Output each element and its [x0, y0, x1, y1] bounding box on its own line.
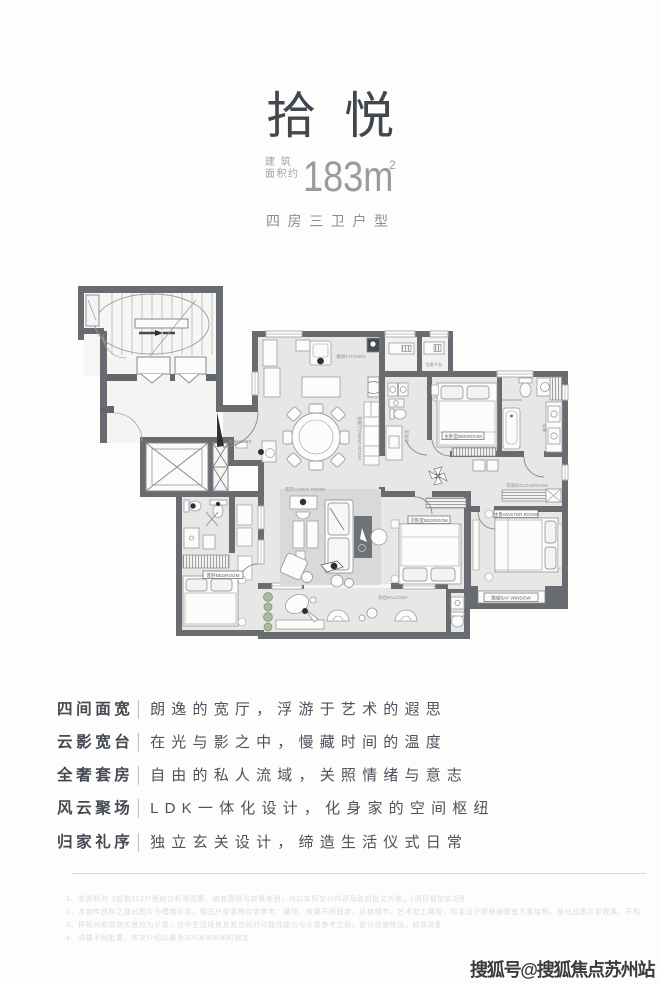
svg-text:家政间: 家政间 [403, 430, 410, 443]
svg-text:客餐厅DINING ROOM: 客餐厅DINING ROOM [356, 416, 363, 460]
svg-text:飘窗BAY WINDOW: 飘窗BAY WINDOW [491, 595, 531, 602]
svg-text:设备平台: 设备平台 [426, 361, 443, 368]
svg-text:餐厨KITCHEN: 餐厨KITCHEN [336, 353, 365, 360]
svg-text:玄关HOYER: 玄关HOYER [228, 438, 251, 445]
svg-text:主卧MASTER ROOM: 主卧MASTER ROOM [494, 511, 538, 518]
svg-text:走廊: 走廊 [541, 424, 548, 432]
svg-text:客卧BEDROOM: 客卧BEDROOM [207, 572, 240, 579]
svg-text:阳台BALCONY: 阳台BALCONY [378, 594, 408, 601]
svg-text:衣帽间CLOAKROOM: 衣帽间CLOAKROOM [506, 482, 548, 489]
svg-text:主卧室BEDROOM: 主卧室BEDROOM [444, 433, 482, 440]
svg-text:次卧室BEDROOM: 次卧室BEDROOM [410, 517, 448, 524]
svg-text:客厅LIVING ROOM: 客厅LIVING ROOM [285, 486, 325, 493]
